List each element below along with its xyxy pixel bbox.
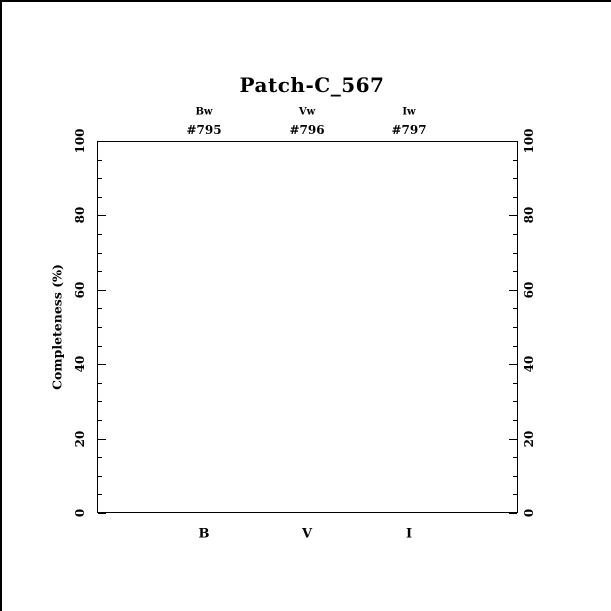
right-axis-minor-tick	[513, 476, 517, 477]
right-axis-minor-tick	[513, 327, 517, 328]
y-tick-label-left: 100	[73, 128, 87, 153]
plot-frame	[97, 141, 518, 513]
right-axis-minor-tick	[513, 494, 517, 495]
right-axis-major-tick	[509, 364, 517, 365]
left-axis-minor-tick	[98, 401, 102, 402]
plot-window: Patch-C_567 Completeness (%) 00202040406…	[0, 0, 611, 611]
y-tick-label-left: 40	[73, 356, 87, 373]
right-axis-minor-tick	[513, 346, 517, 347]
right-axis-minor-tick	[513, 308, 517, 309]
left-axis-major-tick	[98, 215, 106, 216]
y-tick-label-left: 0	[73, 509, 87, 517]
left-axis-major-tick	[98, 439, 106, 440]
y-tick-label-left: 20	[73, 431, 87, 448]
y-tick-label-right: 40	[522, 356, 536, 373]
left-axis-minor-tick	[98, 271, 102, 272]
y-tick-label-right: 60	[522, 282, 536, 299]
left-axis-minor-tick	[98, 327, 102, 328]
chart-title: Patch-C_567	[240, 73, 385, 97]
top-filter-label: Vw	[299, 107, 315, 118]
left-axis-minor-tick	[98, 346, 102, 347]
right-axis-major-tick	[509, 141, 517, 142]
left-axis-minor-tick	[98, 383, 102, 384]
right-axis-minor-tick	[513, 178, 517, 179]
left-axis-major-tick	[98, 141, 106, 142]
bottom-band-label: B	[199, 527, 210, 542]
right-axis-minor-tick	[513, 457, 517, 458]
bottom-band-label: I	[406, 527, 412, 542]
y-tick-label-right: 20	[522, 431, 536, 448]
left-axis-minor-tick	[98, 160, 102, 161]
right-axis-major-tick	[509, 215, 517, 216]
left-axis-minor-tick	[98, 476, 102, 477]
left-axis-minor-tick	[98, 308, 102, 309]
window-border-top	[0, 0, 611, 2]
right-axis-minor-tick	[513, 253, 517, 254]
y-tick-label-left: 60	[73, 282, 87, 299]
left-axis-minor-tick	[98, 197, 102, 198]
right-axis-minor-tick	[513, 160, 517, 161]
top-filter-label: Iw	[402, 107, 415, 118]
right-axis-minor-tick	[513, 197, 517, 198]
top-run-label: #796	[289, 123, 324, 137]
left-axis-major-tick	[98, 364, 106, 365]
left-axis-minor-tick	[98, 494, 102, 495]
top-run-label: #795	[186, 123, 221, 137]
y-tick-label-left: 80	[73, 207, 87, 224]
right-axis-major-tick	[509, 290, 517, 291]
y-tick-label-right: 0	[522, 509, 536, 517]
window-border-left	[0, 0, 2, 611]
right-axis-minor-tick	[513, 420, 517, 421]
right-axis-minor-tick	[513, 383, 517, 384]
bottom-band-label: V	[302, 527, 312, 542]
left-axis-major-tick	[98, 513, 106, 514]
right-axis-minor-tick	[513, 271, 517, 272]
y-axis-title: Completeness (%)	[50, 264, 65, 390]
right-axis-minor-tick	[513, 401, 517, 402]
right-axis-major-tick	[509, 513, 517, 514]
right-axis-major-tick	[509, 439, 517, 440]
top-filter-label: Bw	[195, 107, 212, 118]
left-axis-minor-tick	[98, 253, 102, 254]
right-axis-minor-tick	[513, 234, 517, 235]
left-axis-major-tick	[98, 290, 106, 291]
left-axis-minor-tick	[98, 457, 102, 458]
y-tick-label-right: 80	[522, 207, 536, 224]
top-run-label: #797	[391, 123, 426, 137]
left-axis-minor-tick	[98, 178, 102, 179]
left-axis-minor-tick	[98, 234, 102, 235]
y-tick-label-right: 100	[522, 128, 536, 153]
left-axis-minor-tick	[98, 420, 102, 421]
